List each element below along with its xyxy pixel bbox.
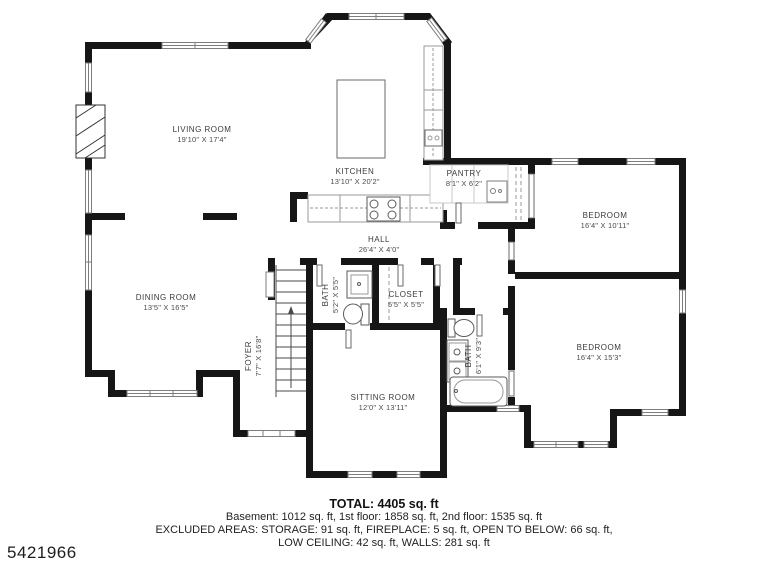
room-dims: 26'4" X 4'0": [359, 245, 400, 256]
room-dims: 5'2" X 5'5": [331, 277, 342, 313]
area-summary: TOTAL: 4405 sq. ft Basement: 1012 sq. ft…: [0, 497, 768, 550]
room-dims: 7'7" X 16'8": [254, 336, 265, 377]
excluded-areas-line2: LOW CEILING: 42 sq. ft, WALLS: 281 sq. f…: [0, 537, 768, 550]
listing-id: 5421966: [7, 543, 77, 563]
room-label-kitchen: KITCHEN 13'10" X 20'2": [330, 166, 379, 188]
room-name: BATH: [320, 277, 331, 313]
room-dims: 8'1" X 6'2": [446, 179, 482, 190]
fireplace-icon: [76, 105, 105, 158]
staircase: [266, 265, 306, 397]
room-label-foyer: FOYER 7'7" X 16'8": [243, 336, 265, 377]
room-name: LIVING ROOM: [173, 124, 232, 135]
room-dims: 19'10" X 17'4": [173, 135, 232, 146]
room-name: CLOSET: [388, 289, 424, 300]
room-dims: 16'4" X 10'11": [581, 221, 630, 232]
kitchen-fixtures: [308, 46, 508, 222]
room-name: PANTRY: [446, 168, 482, 179]
room-dims: 6'1" X 9'3": [474, 338, 485, 374]
floor-plan-drawing: [0, 0, 768, 576]
floor-areas: Basement: 1012 sq. ft, 1st floor: 1858 s…: [0, 511, 768, 524]
room-name: FOYER: [243, 336, 254, 377]
room-label-hall-bath: BATH 5'2" X 5'5": [320, 277, 342, 313]
room-dims: 13'10" X 20'2": [330, 177, 379, 188]
room-label-pantry: PANTRY 8'1" X 6'2": [446, 168, 482, 190]
room-name: KITCHEN: [330, 166, 379, 177]
room-label-dining-room: DINING ROOM 13'5" X 16'5": [136, 292, 197, 314]
excluded-areas-line1: EXCLUDED AREAS: STORAGE: 91 sq. ft, FIRE…: [0, 524, 768, 537]
room-label-closet: CLOSET 5'5" X 5'5": [388, 289, 424, 311]
room-label-living-room: LIVING ROOM 19'10" X 17'4": [173, 124, 232, 146]
room-label-bedroom-se: BEDROOM 16'4" X 15'3": [577, 342, 622, 364]
room-name: BEDROOM: [581, 210, 630, 221]
room-label-hall: HALL 26'4" X 4'0": [359, 234, 400, 256]
room-name: BEDROOM: [577, 342, 622, 353]
room-name: SITTING ROOM: [351, 392, 416, 403]
floor-plan-page: LIVING ROOM 19'10" X 17'4" KITCHEN 13'10…: [0, 0, 768, 576]
room-dims: 16'4" X 15'3": [577, 353, 622, 364]
room-label-bedroom-ne: BEDROOM 16'4" X 10'11": [581, 210, 630, 232]
room-dims: 13'5" X 16'5": [136, 303, 197, 314]
room-name: DINING ROOM: [136, 292, 197, 303]
room-name: BATH: [463, 338, 474, 374]
room-label-sitting-room: SITTING ROOM 12'0" X 13'11": [351, 392, 416, 414]
room-dims: 5'5" X 5'5": [388, 300, 424, 311]
total-area: TOTAL: 4405 sq. ft: [0, 497, 768, 511]
room-dims: 12'0" X 13'11": [351, 403, 416, 414]
room-label-main-bath: BATH 6'1" X 9'3": [463, 338, 485, 374]
room-name: HALL: [359, 234, 400, 245]
